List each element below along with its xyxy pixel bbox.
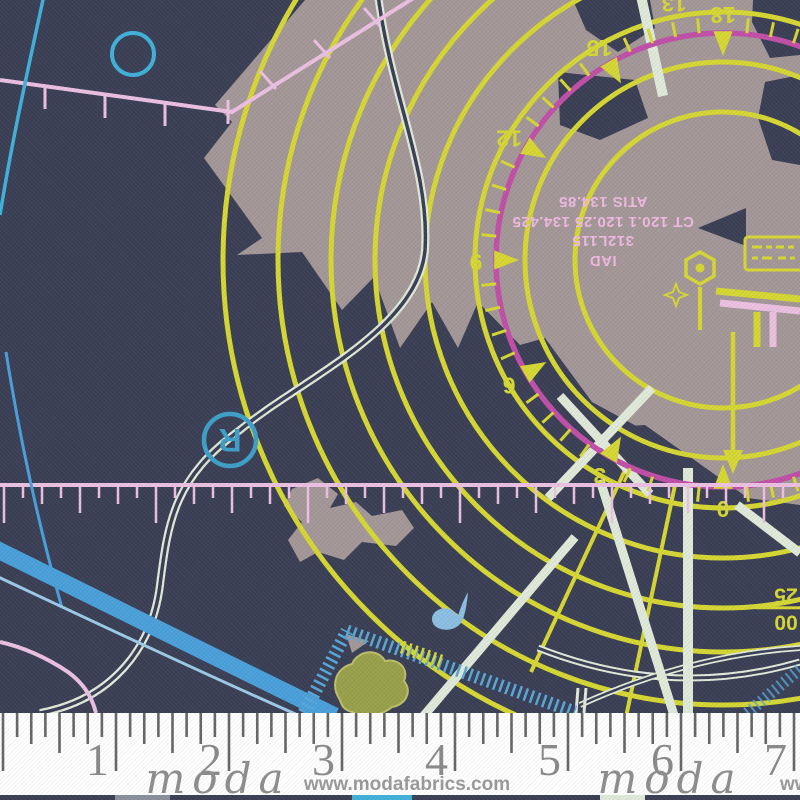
info-line-atis: ATIS 134.85: [505, 192, 701, 212]
compass-heading-label: 0: [717, 496, 730, 522]
info-line-runway: 312L115: [505, 231, 701, 251]
moda-logo: moda: [597, 754, 742, 800]
moda-logo: moda: [145, 754, 290, 800]
compass-heading-label: 18: [710, 2, 736, 28]
compass-heading-label: 12: [496, 125, 522, 151]
compass-heading-label: 6: [503, 372, 516, 398]
selvage-ruler: 1234567modamodawww.modafabrics.comwww.m: [0, 713, 800, 800]
ruler-graphics: 1234567modamodawww.modafabrics.comwww.m: [0, 713, 800, 800]
r-marker-letter: R: [218, 422, 241, 458]
info-line-iad: IAD: [505, 251, 701, 271]
fraction-bottom: 25: [756, 582, 800, 609]
fabric-swatch: 036912151813R IAD 312L115 CT 120.1 120.2…: [0, 0, 800, 800]
website-text-partial: www.m: [779, 774, 800, 795]
fraction-top: 00: [756, 609, 800, 633]
airway-fraction-label: 00 25: [756, 582, 800, 633]
compass-heading-label: 9: [470, 249, 483, 275]
website-text: www.modafabrics.com: [303, 774, 510, 795]
ruler-inch-number: 5: [538, 734, 561, 785]
aeronautical-chart-print: 036912151813R: [0, 0, 800, 713]
fabric-product-photo: 036912151813R IAD 312L115 CT 120.1 120.2…: [0, 0, 800, 800]
compass-heading-label-partial: 13: [662, 0, 686, 16]
airport-info-text: IAD 312L115 CT 120.1 120.25 134.425 ATIS…: [505, 192, 701, 270]
info-line-ct: CT 120.1 120.25 134.425: [505, 212, 701, 232]
ruler-inch-number: 1: [86, 734, 109, 785]
compass-heading-label: 15: [587, 35, 613, 61]
